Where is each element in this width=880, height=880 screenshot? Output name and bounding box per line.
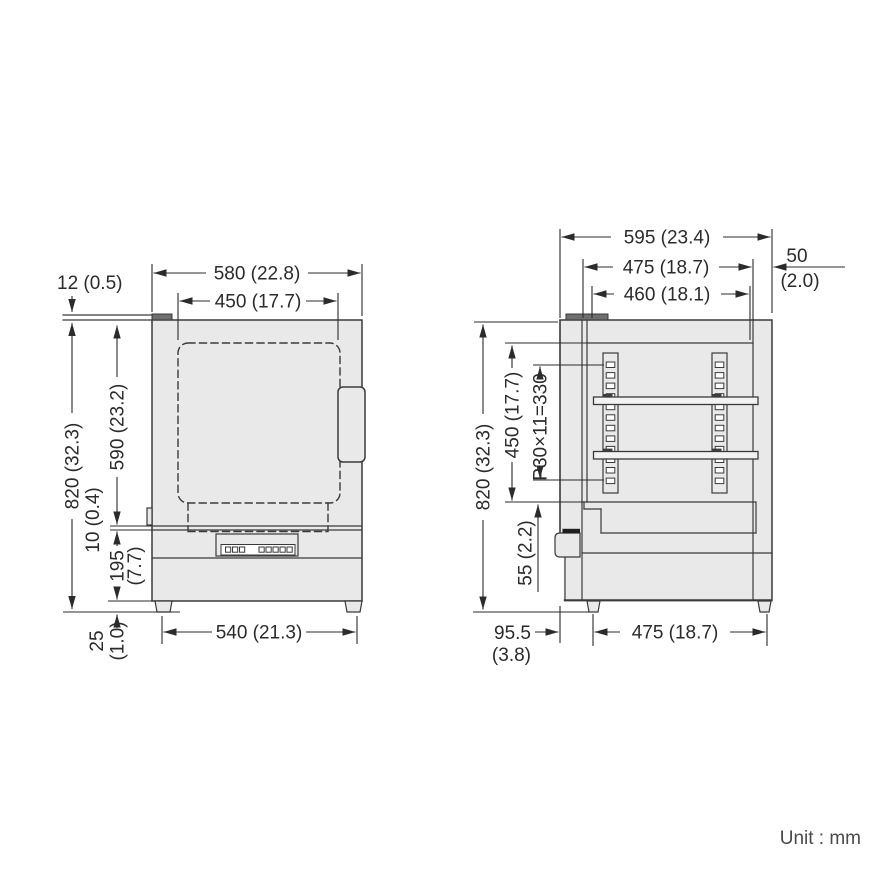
dim-label: 50 [786,246,807,267]
dim-side-rear-clearance: 50 (2.0) [774,246,846,292]
dim-front-gap: 10 (0.4) [83,487,117,552]
front-top-hinge-tab [152,314,172,320]
dim-label: 475 (18.7) [632,623,719,644]
side-front-foot [587,601,600,612]
front-right-foot [345,601,362,612]
shelf-lower [594,452,759,460]
dim-front-upper-height: 590 (23.2) [108,326,129,525]
dim-label: 590 (23.2) [108,384,129,471]
dim-side-floor-offset: 55 (2.2) [516,505,539,593]
dim-label-inches: (1.0) [108,621,129,660]
front-lower-hinge [147,508,152,525]
dim-side-front-foot-offset: 95.5 (3.8) [492,623,559,666]
dim-label: 450 (17.7) [503,372,524,459]
unit-note: Unit : mm [780,828,861,849]
dim-label: 25 [87,630,108,651]
side-latch-box [555,533,580,557]
side-latch-bar [563,529,581,533]
dim-side-shelf-pitch: P30×11=330 [531,367,552,481]
dim-label: 95.5 [494,623,531,644]
dim-label: 820 (32.3) [63,423,84,510]
dim-side-outer-depth: 595 (23.4) [562,228,771,249]
front-left-foot [155,601,172,612]
front-cabinet-body [152,320,362,601]
dim-label-inches: (2.0) [780,271,819,292]
dim-side-inner-depth: 460 (18.1) [594,285,749,306]
control-panel-buttons [226,547,293,552]
shelf-upper [594,397,759,405]
side-view: 595 (23.4) 475 (18.7) 460 (18.1) 50 (2.0… [473,228,845,667]
side-top-hinge-tab [566,314,608,320]
dim-front-inner-width: 450 (17.7) [180,292,337,313]
side-cabinet-body [560,320,772,600]
dim-label: P30×11=330 [531,373,552,480]
dim-label: 12 (0.5) [57,273,122,294]
dim-label: 820 (32.3) [474,424,495,511]
front-door-handle [338,387,365,462]
dim-label-inches: (3.8) [492,645,531,666]
side-base-notch [558,557,564,603]
front-top-plate-lines [63,315,152,320]
dim-label: 595 (23.4) [624,228,711,249]
dim-label: 475 (18.7) [623,258,710,279]
dim-label: 460 (18.1) [624,285,711,306]
dim-side-chamber-height: 450 (17.7) [503,346,524,501]
front-view: 12 (0.5) 580 (22.8) 450 (17.7) 820 (32.3… [57,264,365,661]
front-control-panel [216,534,298,556]
dim-side-foot-span: 475 (18.7) [595,623,766,644]
drawing-svg: 12 (0.5) 580 (22.8) 450 (17.7) 820 (32.3… [0,0,880,880]
dim-front-base-height: 195 (7.7) [108,546,147,599]
dim-label-inches: (7.7) [125,546,146,585]
dim-front-top-plate: 12 (0.5) [57,273,122,312]
dim-label: 540 (21.3) [216,623,303,644]
dim-label: 55 (2.2) [516,520,537,585]
dim-side-chamber-depth: 475 (18.7) [585,258,752,279]
dim-front-outer-width: 580 (22.8) [154,264,361,285]
dim-side-total-height: 820 (32.3) [474,325,495,610]
dim-label: 580 (22.8) [214,264,301,285]
side-rear-foot [758,601,771,612]
dim-label: 450 (17.7) [215,292,302,313]
dim-front-foot-span: 540 (21.3) [164,623,356,644]
dim-front-total-height: 820 (32.3) [63,323,84,609]
dim-front-foot-height: 25 (1.0) [87,615,129,661]
dim-label: 10 (0.4) [83,487,104,552]
dimension-drawing: 12 (0.5) 580 (22.8) 450 (17.7) 820 (32.3… [0,0,880,880]
